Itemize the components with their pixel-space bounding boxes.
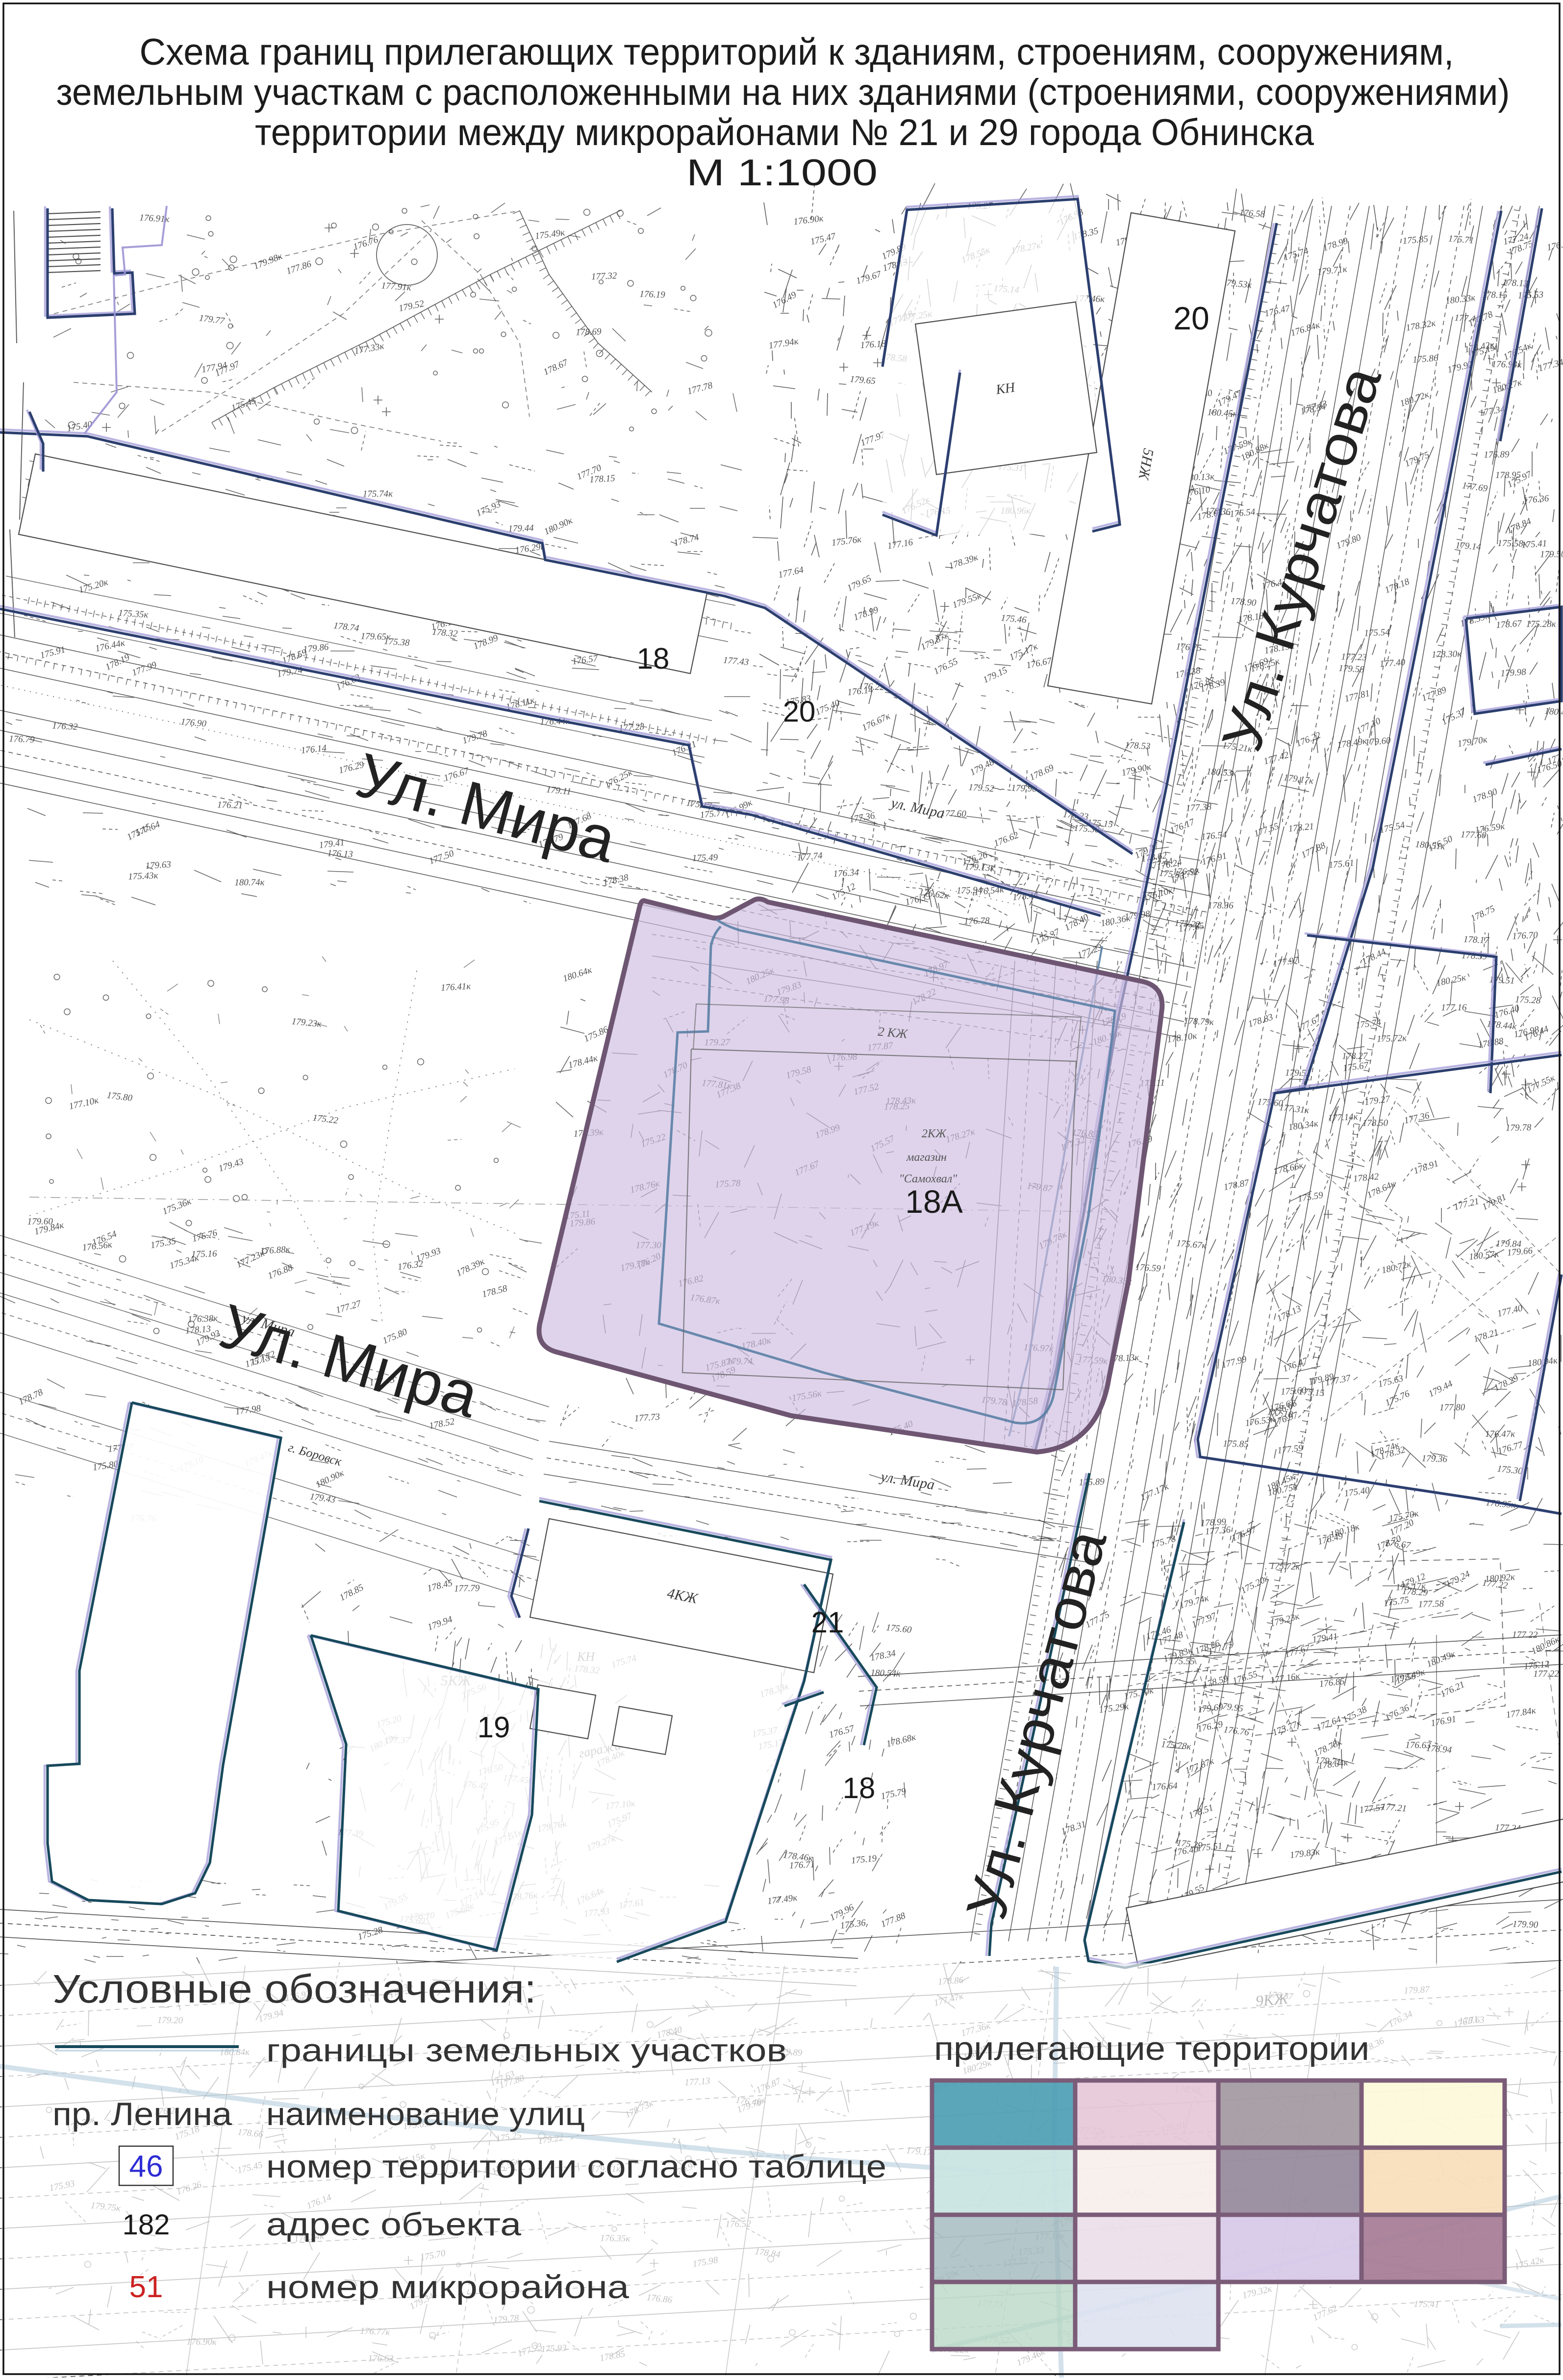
svg-text:20: 20	[783, 695, 816, 728]
svg-text:176.13: 176.13	[327, 848, 353, 859]
svg-text:175.72к: 175.72к	[1377, 1033, 1408, 1044]
svg-text:176.41к: 176.41к	[441, 981, 472, 993]
svg-text:51: 51	[129, 2270, 163, 2304]
svg-text:18А: 18А	[905, 1183, 962, 1220]
svg-text:Схема границ прилегающих терри: Схема границ прилегающих территорий к зд…	[140, 31, 1454, 73]
svg-text:177.22: 177.22	[1512, 1629, 1538, 1640]
svg-text:179.78: 179.78	[1506, 1123, 1532, 1133]
svg-text:179.65к: 179.65к	[360, 631, 391, 642]
svg-text:прилегающие территории: прилегающие территории	[934, 2030, 1369, 2067]
svg-text:178.69: 178.69	[576, 326, 602, 338]
svg-text:177.23: 177.23	[1341, 651, 1367, 663]
svg-text:175.28: 175.28	[1515, 994, 1541, 1006]
svg-text:179.90: 179.90	[1513, 1919, 1538, 1930]
svg-text:176.88к: 176.88к	[260, 1244, 291, 1256]
svg-text:21: 21	[811, 1606, 844, 1639]
svg-text:177.58: 177.58	[1418, 1599, 1444, 1609]
svg-text:территории между микрорайонами: территории между микрорайонами № 21 и 29…	[255, 112, 1314, 153]
svg-text:175.49: 175.49	[692, 852, 718, 864]
svg-text:наименование улиц: наименование улиц	[266, 2096, 585, 2132]
svg-text:177.32: 177.32	[591, 271, 618, 282]
svg-text:175.17к: 175.17к	[1395, 1581, 1426, 1593]
svg-text:182: 182	[123, 2209, 170, 2241]
svg-text:2КЖ: 2КЖ	[922, 1127, 947, 1140]
svg-text:КН: КН	[994, 380, 1017, 398]
svg-text:178.94: 178.94	[1426, 1743, 1452, 1755]
svg-text:М 1:1000: М 1:1000	[686, 152, 878, 194]
svg-text:178.27: 178.27	[1342, 1051, 1368, 1061]
svg-text:178.17: 178.17	[1463, 934, 1490, 946]
svg-text:175.85: 175.85	[1402, 234, 1429, 246]
svg-text:175.53: 175.53	[1517, 290, 1543, 301]
svg-text:пр. Ленина: пр. Ленина	[52, 2096, 232, 2132]
svg-text:178.53: 178.53	[1125, 740, 1151, 752]
svg-text:177.91к: 177.91к	[381, 280, 412, 293]
svg-text:адрес объекта: адрес объекта	[266, 2206, 521, 2242]
svg-text:178.30к: 178.30к	[1432, 649, 1462, 660]
svg-text:176.54: 176.54	[1201, 830, 1227, 842]
svg-text:номер микрорайона: номер микрорайона	[266, 2269, 629, 2305]
svg-text:179.65: 179.65	[850, 374, 876, 386]
svg-text:177.73: 177.73	[634, 1412, 660, 1424]
svg-text:границы земельных участков: границы земельных участков	[266, 2032, 787, 2068]
svg-text:2 КЖ: 2 КЖ	[877, 1024, 908, 1041]
svg-text:Условные обозначения:: Условные обозначения:	[52, 1967, 536, 2011]
svg-text:магазин: магазин	[906, 1151, 947, 1164]
svg-text:18: 18	[843, 1772, 876, 1804]
svg-text:178.67: 178.67	[1496, 619, 1523, 631]
svg-text:175.35к: 175.35к	[118, 608, 150, 620]
svg-text:175.86: 175.86	[1412, 353, 1439, 365]
svg-text:номер территории согласно табл: номер территории согласно таблице	[266, 2148, 886, 2184]
svg-text:176.70: 176.70	[1512, 930, 1538, 942]
svg-text:176.64: 176.64	[1152, 1781, 1178, 1793]
svg-text:178.32: 178.32	[431, 627, 458, 639]
svg-text:180.74к: 180.74к	[234, 877, 265, 888]
svg-text:175.28к: 175.28к	[1526, 619, 1556, 629]
svg-text:175.54: 175.54	[1364, 627, 1390, 638]
svg-text:176.94к: 176.94к	[1491, 359, 1522, 370]
svg-text:176.21: 176.21	[217, 800, 243, 811]
svg-text:179.52: 179.52	[968, 782, 995, 794]
svg-text:земельным участкам с расположе: земельным участкам с расположенными на н…	[56, 72, 1510, 113]
svg-text:179.60: 179.60	[1365, 735, 1391, 748]
svg-text:179.13к: 179.13к	[964, 862, 995, 874]
svg-text:178.36: 178.36	[1208, 901, 1234, 911]
svg-text:179.98: 179.98	[1500, 667, 1527, 678]
svg-text:177.60: 177.60	[1461, 829, 1487, 841]
svg-text:176.34: 176.34	[833, 868, 859, 879]
svg-text:175.74к: 175.74к	[363, 489, 393, 499]
svg-text:180.54к: 180.54к	[870, 1668, 901, 1679]
svg-text:176.71: 176.71	[789, 1859, 815, 1871]
svg-text:176.38к: 176.38к	[187, 1313, 218, 1325]
svg-text:19: 19	[478, 1711, 510, 1744]
svg-text:177.16: 177.16	[1441, 1002, 1467, 1013]
svg-text:175.85: 175.85	[1223, 1439, 1249, 1450]
svg-text:46: 46	[129, 2150, 163, 2183]
svg-text:176.59: 176.59	[1135, 1262, 1161, 1274]
svg-text:177.79: 177.79	[454, 1583, 480, 1594]
svg-text:177.80: 177.80	[1439, 1403, 1465, 1413]
svg-text:176.19: 176.19	[639, 289, 665, 301]
svg-text:179.63: 179.63	[145, 859, 171, 871]
svg-text:175.43к: 175.43к	[128, 871, 159, 882]
svg-text:18: 18	[637, 642, 670, 675]
svg-text:20: 20	[1173, 300, 1209, 336]
